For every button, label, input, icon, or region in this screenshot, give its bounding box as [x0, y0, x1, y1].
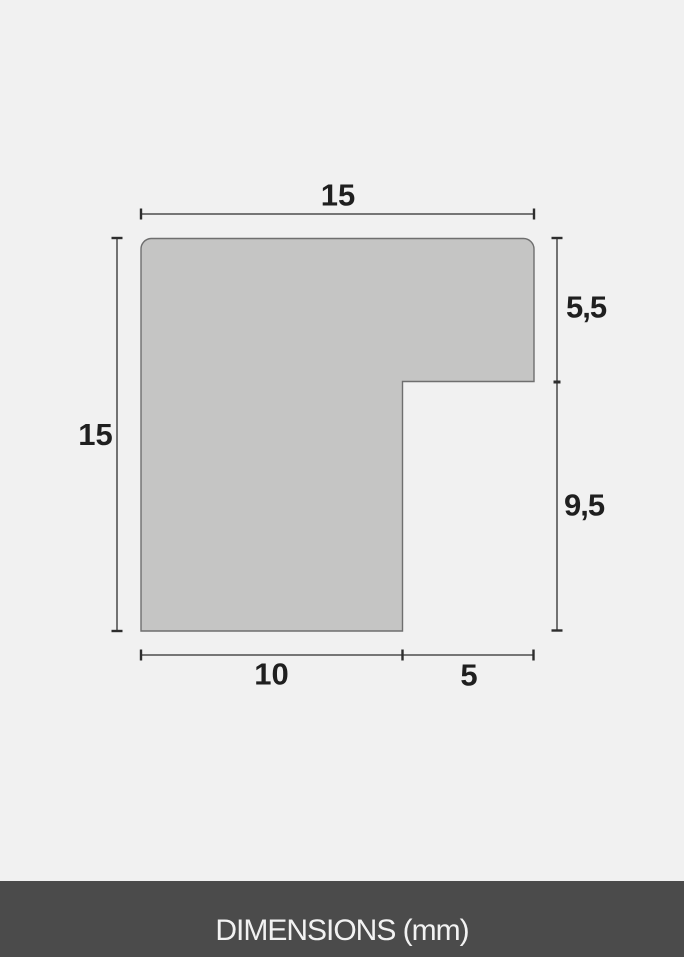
svg-text:10: 10	[254, 657, 288, 692]
svg-text:5,5: 5,5	[566, 290, 607, 325]
svg-text:9,5: 9,5	[564, 488, 605, 523]
svg-text:15: 15	[321, 178, 355, 213]
svg-text:5: 5	[460, 658, 477, 693]
svg-text:15: 15	[78, 417, 112, 452]
